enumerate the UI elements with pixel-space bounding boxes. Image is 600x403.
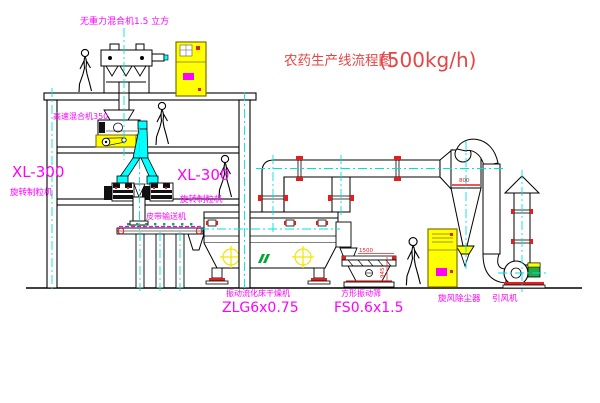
worker-figure-ground <box>406 238 420 286</box>
granulator-right-machine <box>142 183 173 201</box>
chute-branch-right <box>141 158 158 178</box>
dryer-port <box>208 220 216 226</box>
chute-branch-left <box>119 158 140 178</box>
exhaust-ductwork <box>258 156 440 212</box>
label-granulator-right-model: XL-300 <box>177 166 229 184</box>
downcomer-duct <box>483 164 500 254</box>
label-belt-conveyor: 皮带输送机 <box>146 211 186 221</box>
dryer-port <box>318 220 326 226</box>
label-high-speed-mixer: 高速混合机350 <box>53 111 108 121</box>
dryer-feed-hopper <box>188 234 204 250</box>
mixer-side-pipe <box>152 54 164 61</box>
label-granulator-right-name: 旋转制粒机 <box>180 194 223 205</box>
control-cabinet-bottom <box>428 229 457 287</box>
dryer-foot <box>212 268 222 278</box>
label-dryer-name: 振动流化床干燥机 <box>226 288 290 298</box>
control-cabinet-top <box>176 42 206 96</box>
label-granulator-left-model: XL-300 <box>12 163 64 181</box>
fluid-bed-dryer <box>188 212 351 284</box>
dryer-foot-pad <box>209 278 225 281</box>
fan-base <box>503 285 545 288</box>
screen-length-dim: 1500 <box>359 248 373 254</box>
square-vibrating-screen: 1500 945 <box>340 248 396 287</box>
cad-drawing-canvas: 800 <box>0 0 600 403</box>
label-cyclone: 旋风除尘器 <box>438 293 481 304</box>
dryer-foot <box>314 268 324 278</box>
drawing-title: 农药生产线流程图 <box>284 53 392 69</box>
elbow-duct <box>262 160 440 212</box>
granulator-left-machine <box>104 183 134 201</box>
label-screen-model: FS0.6x1.5 <box>334 300 404 316</box>
dryer-foot-pad <box>311 278 327 281</box>
screen-base <box>344 282 394 287</box>
drawing-title-capacity: (500kg/h) <box>379 48 476 72</box>
fan-base-pad <box>504 282 544 285</box>
cyclone-discharge-valve <box>456 246 474 254</box>
label-dryer-model: ZLG6x0.75 <box>222 300 299 316</box>
dryer-port <box>286 220 294 226</box>
dryer-top-band <box>204 212 338 218</box>
top-floor-slab <box>44 93 256 100</box>
fan-and-stack <box>483 164 545 288</box>
downcomer-bend <box>483 254 506 283</box>
worker-figure-top-floor <box>79 49 92 92</box>
process-flow-diagram: 800 <box>0 0 600 403</box>
label-gravity-free-mixer: 无重力混合机1.5 立方 <box>80 15 169 27</box>
cabinet-nameplate <box>183 73 194 80</box>
screen-side-dim: 945 <box>380 267 386 278</box>
label-fan: 引风机 <box>492 293 518 304</box>
cyclone-inlet-transition <box>440 150 452 190</box>
label-screen-name: 方形振动筛 <box>341 288 381 298</box>
dryer-discharge-spout <box>336 222 351 247</box>
cyclone-dim-text: 800 <box>459 178 470 184</box>
label-granulator-left-name: 旋转制粒机 <box>10 187 53 198</box>
gravity-free-mixer <box>101 44 168 93</box>
cabinet-nameplate <box>436 268 447 276</box>
worker-figure-mid-floor <box>156 102 169 145</box>
